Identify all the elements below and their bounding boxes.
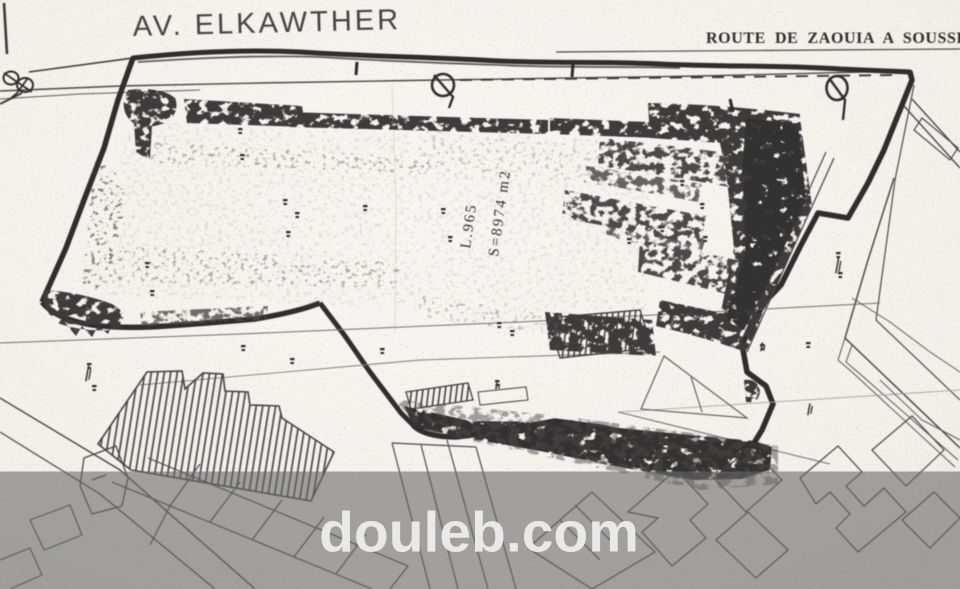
svg-text:douleb.com: douleb.com <box>319 501 639 565</box>
svg-text:ROUTE DE ZAOUIA A SOUSSE: ROUTE DE ZAOUIA A SOUSSE <box>706 30 960 47</box>
